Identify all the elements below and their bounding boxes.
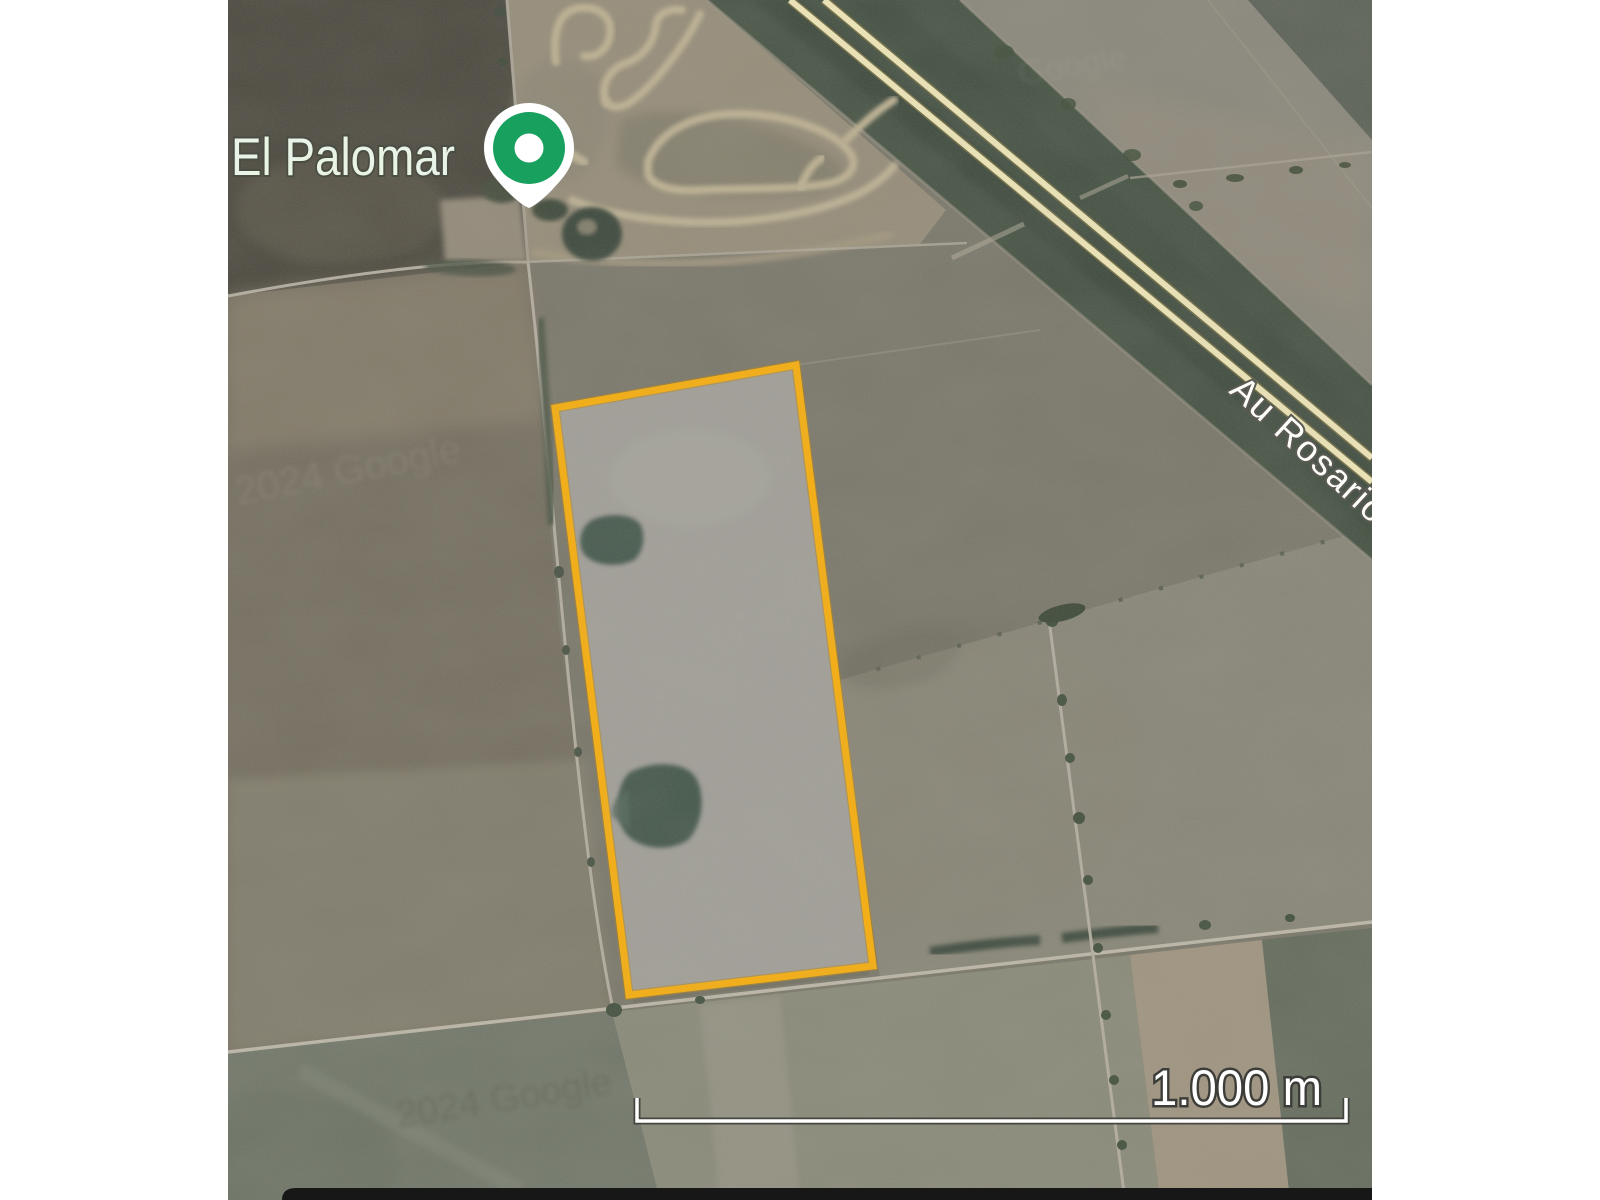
svg-text:El Palomar: El Palomar bbox=[231, 128, 455, 187]
svg-text:1.000 m: 1.000 m bbox=[1151, 1060, 1322, 1116]
